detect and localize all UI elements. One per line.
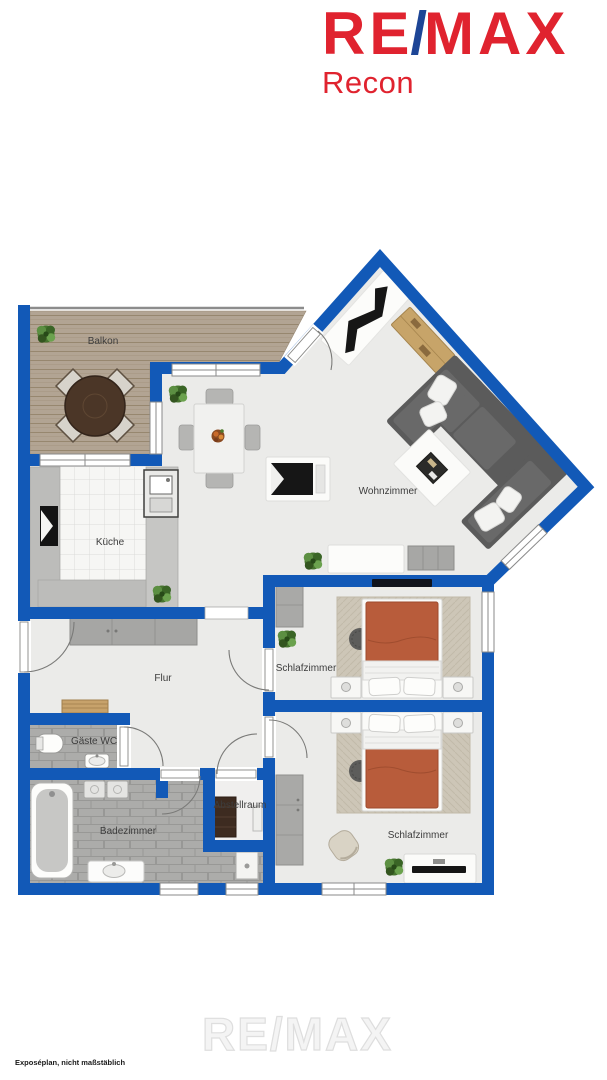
window-bathroom-2: [226, 883, 258, 895]
plant: [37, 326, 56, 343]
window-kitchen-balcony: [40, 454, 130, 466]
plant: [169, 386, 188, 403]
window-bedroom-2: [322, 883, 386, 895]
tv-bedroom-1: [372, 579, 432, 587]
room-label-guest-wc: Gäste WC: [71, 736, 117, 747]
dining-chair: [206, 389, 233, 405]
room-label-kitchen: Küche: [96, 537, 125, 548]
opening-hall-living: [205, 607, 248, 619]
plant: [153, 586, 172, 603]
room-label-storage: Abstellraum: [214, 800, 267, 811]
dryer: [107, 781, 128, 798]
bedroom-2-wardrobe: [276, 775, 303, 865]
shower-tray: [236, 852, 258, 879]
window-bathroom-1: [160, 883, 198, 895]
bed-2: [331, 712, 473, 813]
console-table: [328, 545, 404, 573]
room-label-living-room: Wohnzimmer: [359, 486, 418, 497]
floorplan: Balkon Wohnzimmer Küche Flur Gäste WC Ba…: [0, 0, 607, 1080]
toilet: [36, 734, 63, 753]
window-balcony-side: [150, 402, 162, 454]
tv-lowboard: [266, 457, 330, 501]
kitchen-appliance: [40, 506, 58, 546]
kitchen-sink-unit: [144, 470, 178, 517]
disclaimer-text: Exposéplan, nicht maßstäblich: [15, 1058, 125, 1067]
wc-sink: [85, 754, 109, 768]
washer: [84, 781, 105, 798]
desk: [404, 854, 476, 883]
balcony-table: [65, 376, 125, 436]
hall-wardrobe: [70, 616, 197, 645]
room-label-hallway: Flur: [154, 673, 172, 684]
plant: [385, 859, 404, 876]
room-label-bedroom-2: Schlafzimmer: [388, 830, 449, 841]
plant: [304, 553, 323, 570]
bed-1: [331, 597, 473, 698]
dining-chair: [206, 472, 233, 488]
kitchen-counter-bottom: [38, 580, 146, 607]
window-dining: [172, 364, 260, 376]
dining-chair: [245, 425, 260, 450]
bedroom-1-dresser: [276, 584, 303, 627]
room-label-bedroom-1: Schlafzimmer: [276, 663, 337, 674]
room-label-bathroom: Badezimmer: [100, 826, 157, 837]
room-label-balcony: Balkon: [88, 336, 119, 347]
plant: [278, 631, 297, 648]
hall-bench: [62, 700, 108, 713]
sideboard-gray: [408, 546, 454, 570]
dining-chair: [179, 425, 194, 450]
bathtub: [31, 783, 73, 878]
window-bedroom-1: [482, 592, 494, 652]
bath-vanity: [88, 861, 144, 882]
remax-watermark: RE/MAX: [202, 1007, 393, 1061]
